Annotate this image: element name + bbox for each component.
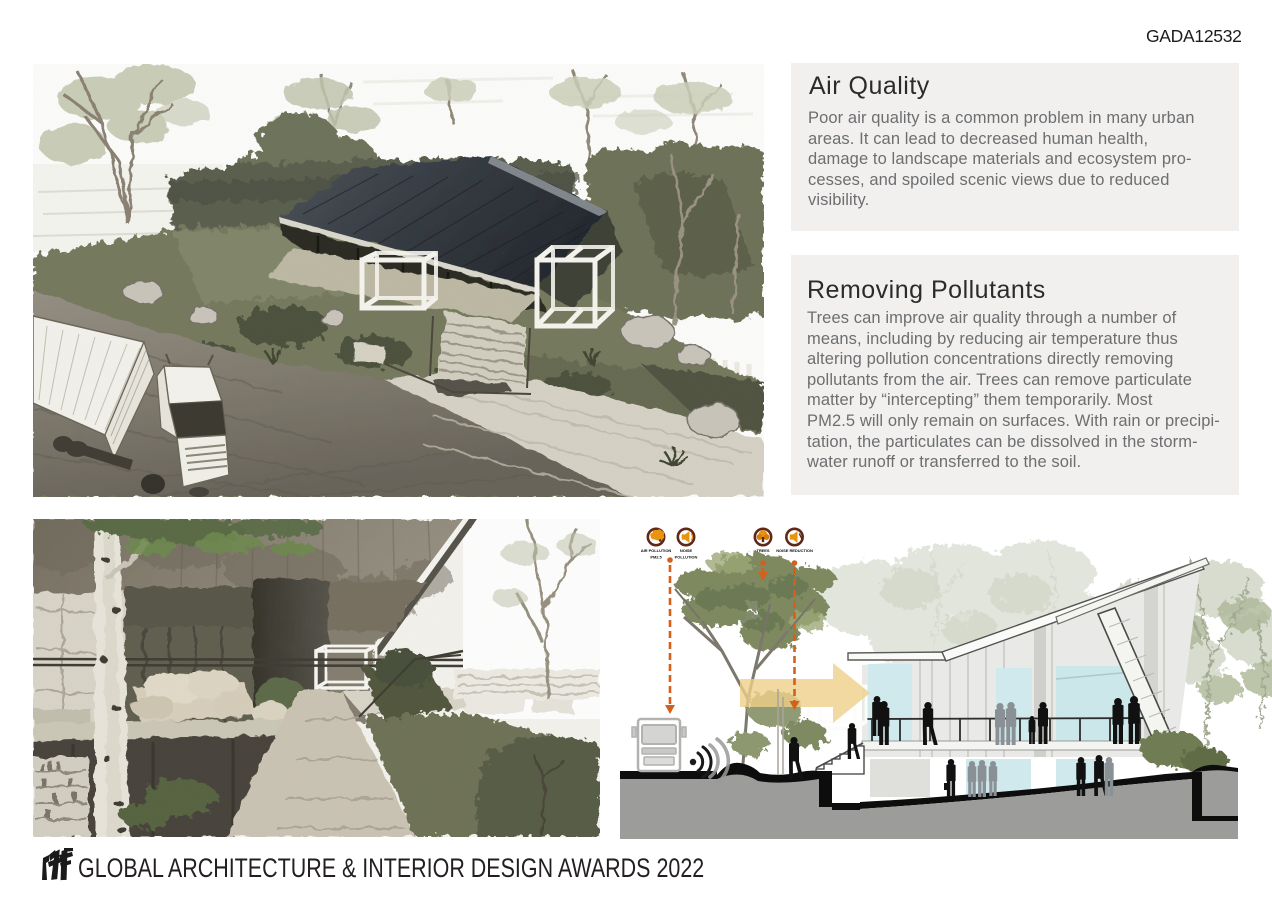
svg-text:NOISE: NOISE <box>680 548 693 553</box>
svg-text:TREES: TREES <box>756 548 769 553</box>
svg-text:NOISE REDUCTION: NOISE REDUCTION <box>776 548 813 553</box>
svg-text:PM2.5: PM2.5 <box>650 555 662 560</box>
svg-text:AIR POLLUTION: AIR POLLUTION <box>641 548 672 553</box>
svg-text:POLLUTION: POLLUTION <box>675 555 698 560</box>
